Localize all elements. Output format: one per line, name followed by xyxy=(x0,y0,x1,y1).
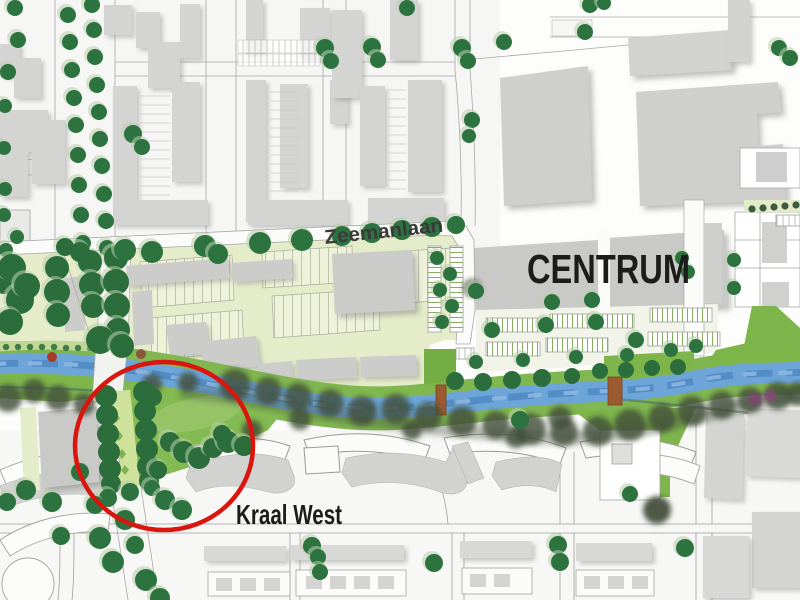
svg-text:CENTRUM: CENTRUM xyxy=(527,246,690,292)
svg-text:Kraal West: Kraal West xyxy=(236,499,342,530)
